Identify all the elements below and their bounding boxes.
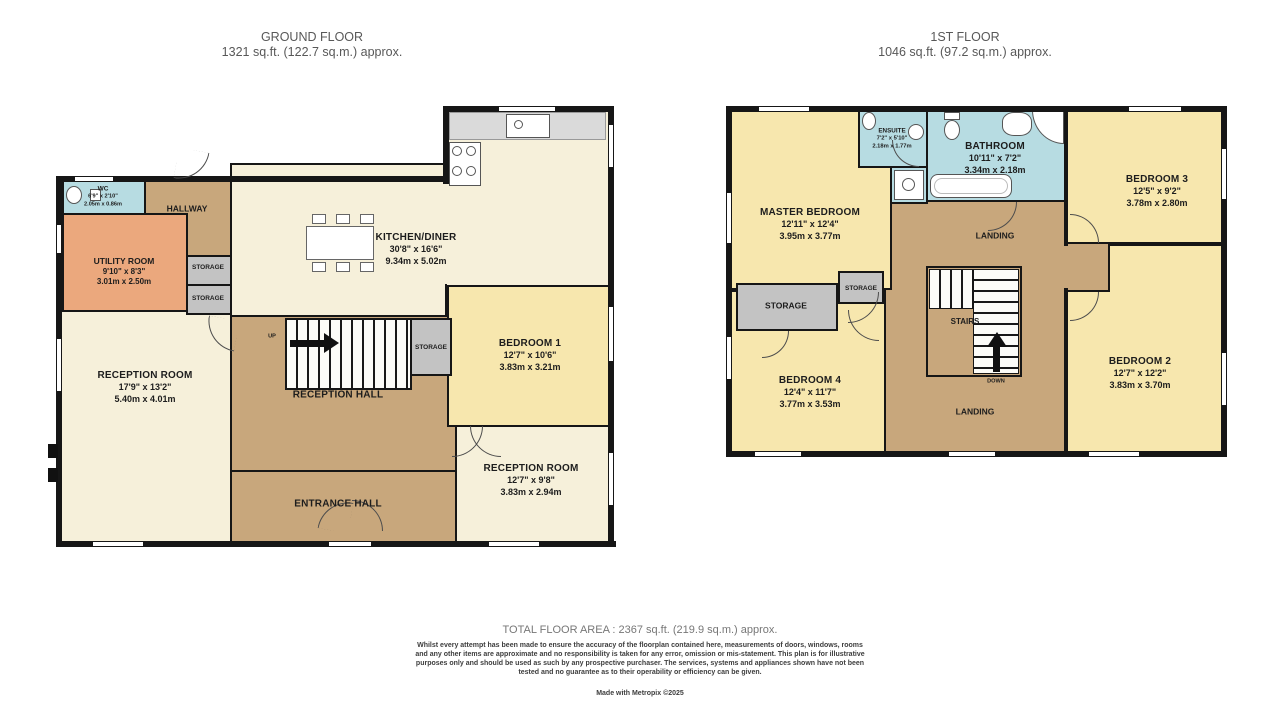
- window: [56, 338, 62, 392]
- window: [328, 541, 372, 547]
- room-dims-ft: 12'5" x 9'2": [1133, 186, 1181, 198]
- room-name: STORAGE: [192, 264, 224, 272]
- room-name: HALLWAY: [167, 203, 208, 214]
- label-bedroom-3: BEDROOM 3 12'5" x 9'2" 3.78m x 2.80m: [1126, 173, 1188, 209]
- room-dims-ft: 6'9" x 2'10": [88, 194, 118, 201]
- window: [498, 106, 556, 112]
- room-dims-m: 3.78m x 2.80m: [1126, 198, 1187, 210]
- room-dims-ft: 9'10" x 8'3": [103, 267, 146, 277]
- room-dims-ft: 12'7" x 10'6": [504, 350, 557, 362]
- label-entrance-hall: ENTRANCE HALL: [294, 498, 382, 511]
- label-bedroom-4: BEDROOM 4 12'4" x 11'7" 3.77m x 3.53m: [779, 374, 841, 410]
- room-landing-elbow: [1066, 242, 1110, 292]
- room-name: ENTRANCE HALL: [294, 498, 382, 511]
- room-reception-1: [60, 310, 232, 547]
- label-wc: WC 6'9" x 2'10" 2.05m x 0.86m: [84, 186, 122, 209]
- room-dims-m: 3.83m x 3.70m: [1109, 380, 1170, 392]
- room-dims-ft: 30'8" x 16'6": [390, 244, 443, 256]
- label-bedroom-1: BEDROOM 1 12'7" x 10'6" 3.83m x 3.21m: [499, 337, 561, 373]
- label-master-bedroom: MASTER BEDROOM 12'11" x 12'4" 3.95m x 3.…: [760, 206, 860, 242]
- first-floor-title: 1ST FLOOR: [785, 30, 1145, 45]
- window: [1088, 451, 1140, 457]
- stairs-up-arrow-shaft: [290, 340, 324, 347]
- room-name: KITCHEN/DINER: [376, 231, 457, 244]
- room-dims-m: 5.40m x 4.01m: [114, 394, 175, 406]
- ground-floor-header: GROUND FLOOR 1321 sq.ft. (122.7 sq.m.) a…: [132, 30, 492, 60]
- room-dims-m: 3.77m x 3.53m: [779, 399, 840, 411]
- room-dims-ft: 12'7" x 9'8": [507, 475, 555, 487]
- toilet-icon: [944, 120, 960, 140]
- window: [56, 224, 62, 254]
- chimney-breast: [48, 468, 58, 482]
- stairs-down-arrow-shaft: [993, 346, 1000, 372]
- label-utility: UTILITY ROOM 9'10" x 8'3" 3.01m x 2.50m: [94, 256, 155, 288]
- bathroom-sink-icon: [1002, 112, 1032, 136]
- label-storage-3: STORAGE: [415, 344, 447, 352]
- wall-segment: [726, 106, 732, 457]
- room-dims-ft: 10'11" x 7'2": [969, 153, 1021, 165]
- window: [1221, 148, 1227, 200]
- label-reception-1: RECEPTION ROOM 17'9" x 13'2" 5.40m x 4.0…: [97, 369, 192, 405]
- window: [74, 176, 114, 182]
- room-name: STORAGE: [192, 295, 224, 303]
- metropix-credit: Made with Metropix ©2025: [400, 690, 880, 697]
- window: [1221, 352, 1227, 406]
- total-floor-area: TOTAL FLOOR AREA : 2367 sq.ft. (219.9 sq…: [400, 624, 880, 636]
- window: [726, 336, 732, 380]
- room-name: RECEPTION ROOM: [97, 369, 192, 382]
- label-landing-top: LANDING: [976, 230, 1015, 241]
- room-dims-m: 3.95m x 3.77m: [779, 231, 840, 243]
- window: [726, 192, 732, 244]
- dining-chair: [360, 214, 374, 224]
- room-name: MASTER BEDROOM: [760, 206, 860, 219]
- label-kitchen-diner: KITCHEN/DINER 30'8" x 16'6" 9.34m x 5.02…: [376, 231, 457, 267]
- room-name: RECEPTION HALL: [293, 389, 384, 402]
- ground-floor-area: 1321 sq.ft. (122.7 sq.m.) approx.: [132, 45, 492, 60]
- stairs-direction: DOWN: [987, 378, 1005, 385]
- room-name: BATHROOM: [965, 140, 1025, 153]
- room-dims-m: 9.34m x 5.02m: [385, 256, 446, 268]
- room-dims-m: 2.18m x 1.77m: [872, 143, 911, 151]
- label-stairs-down: DOWN: [987, 378, 1005, 385]
- room-dims-m: 3.83m x 2.94m: [500, 487, 561, 499]
- stairs-direction: UP: [268, 333, 276, 340]
- label-stairs-up: UP: [268, 333, 276, 340]
- label-storage-b: STORAGE: [845, 285, 877, 293]
- sink-basin-icon: [902, 178, 915, 191]
- dining-chair: [336, 262, 350, 272]
- dining-chair: [336, 214, 350, 224]
- sink-basin-icon: [514, 120, 523, 129]
- room-dims-ft: 7'2" x 5'10": [877, 136, 908, 144]
- room-dims-m: 3.01m x 2.50m: [97, 278, 151, 288]
- dining-chair: [312, 214, 326, 224]
- stairs-ground: [285, 318, 412, 390]
- window: [488, 541, 540, 547]
- room-name: RECEPTION ROOM: [483, 462, 578, 475]
- ground-floor-title: GROUND FLOOR: [132, 30, 492, 45]
- bathtub-inner: [934, 178, 1008, 194]
- stairs-down-arrow-icon: [987, 332, 1007, 347]
- label-bathroom: BATHROOM 10'11" x 7'2" 3.34m x 2.18m: [964, 140, 1025, 176]
- dining-chair: [312, 262, 326, 272]
- hob-ring-icon: [452, 146, 462, 156]
- room-dims-ft: 12'4" x 11'7": [784, 387, 836, 399]
- window: [608, 452, 614, 506]
- wall-segment: [56, 176, 449, 182]
- label-reception-2: RECEPTION ROOM 12'7" x 9'8" 3.83m x 2.94…: [483, 462, 578, 498]
- hob-ring-icon: [452, 166, 462, 176]
- room-name: LANDING: [956, 406, 995, 417]
- window: [1128, 106, 1182, 112]
- label-landing-bottom: LANDING: [956, 406, 995, 417]
- stairs-up-arrow-icon: [324, 333, 339, 353]
- room-name: UTILITY ROOM: [94, 256, 155, 267]
- label-stairs: STAIRS: [951, 317, 980, 327]
- disclaimer-text: Whilst every attempt has been made to en…: [412, 641, 868, 677]
- room-name: BEDROOM 2: [1109, 355, 1171, 368]
- room-dims-m: 3.34m x 2.18m: [964, 165, 1025, 177]
- room-name: STORAGE: [415, 344, 447, 352]
- wall-segment: [443, 106, 449, 184]
- label-storage-1: STORAGE: [192, 264, 224, 272]
- room-name: WC: [98, 186, 109, 194]
- chimney-breast: [48, 444, 58, 458]
- window: [758, 106, 810, 112]
- room-name: STAIRS: [951, 317, 980, 327]
- window: [608, 124, 614, 168]
- dining-chair: [360, 262, 374, 272]
- room-dims-m: 2.05m x 0.86m: [84, 201, 122, 208]
- dining-table: [306, 226, 374, 260]
- floorplan-page: GROUND FLOOR 1321 sq.ft. (122.7 sq.m.) a…: [0, 0, 1280, 703]
- stairs-treads: [929, 269, 973, 309]
- kitchen-sink-icon: [506, 114, 550, 138]
- room-dims-ft: 17'9" x 13'2": [119, 382, 172, 394]
- window: [948, 451, 996, 457]
- toilet-icon: [66, 186, 82, 204]
- label-hallway: HALLWAY: [167, 203, 208, 214]
- label-storage-2: STORAGE: [192, 295, 224, 303]
- label-storage-a: STORAGE: [765, 300, 807, 311]
- room-dims-ft: 12'7" x 12'2": [1114, 368, 1167, 380]
- window: [92, 541, 144, 547]
- room-name: BEDROOM 4: [779, 374, 841, 387]
- hob-ring-icon: [466, 166, 476, 176]
- room-name: BEDROOM 3: [1126, 173, 1188, 186]
- room-name: STORAGE: [765, 300, 807, 311]
- first-floor-header: 1ST FLOOR 1046 sq.ft. (97.2 sq.m.) appro…: [785, 30, 1145, 60]
- window: [608, 306, 614, 362]
- room-name: ENSUITE: [878, 127, 905, 135]
- first-floor-area: 1046 sq.ft. (97.2 sq.m.) approx.: [785, 45, 1145, 60]
- label-ensuite: ENSUITE 7'2" x 5'10" 2.18m x 1.77m: [872, 127, 911, 150]
- window: [754, 451, 802, 457]
- hob-ring-icon: [466, 146, 476, 156]
- landing-open-patch: [1063, 246, 1070, 288]
- room-dims-ft: 12'11" x 12'4": [781, 219, 838, 231]
- label-reception-hall: RECEPTION HALL: [293, 389, 384, 402]
- room-dims-m: 3.83m x 3.21m: [499, 362, 560, 374]
- room-name: BEDROOM 1: [499, 337, 561, 350]
- room-name: STORAGE: [845, 285, 877, 293]
- label-bedroom-2: BEDROOM 2 12'7" x 12'2" 3.83m x 3.70m: [1109, 355, 1171, 391]
- room-name: LANDING: [976, 230, 1015, 241]
- toilet-cistern-icon: [944, 112, 960, 120]
